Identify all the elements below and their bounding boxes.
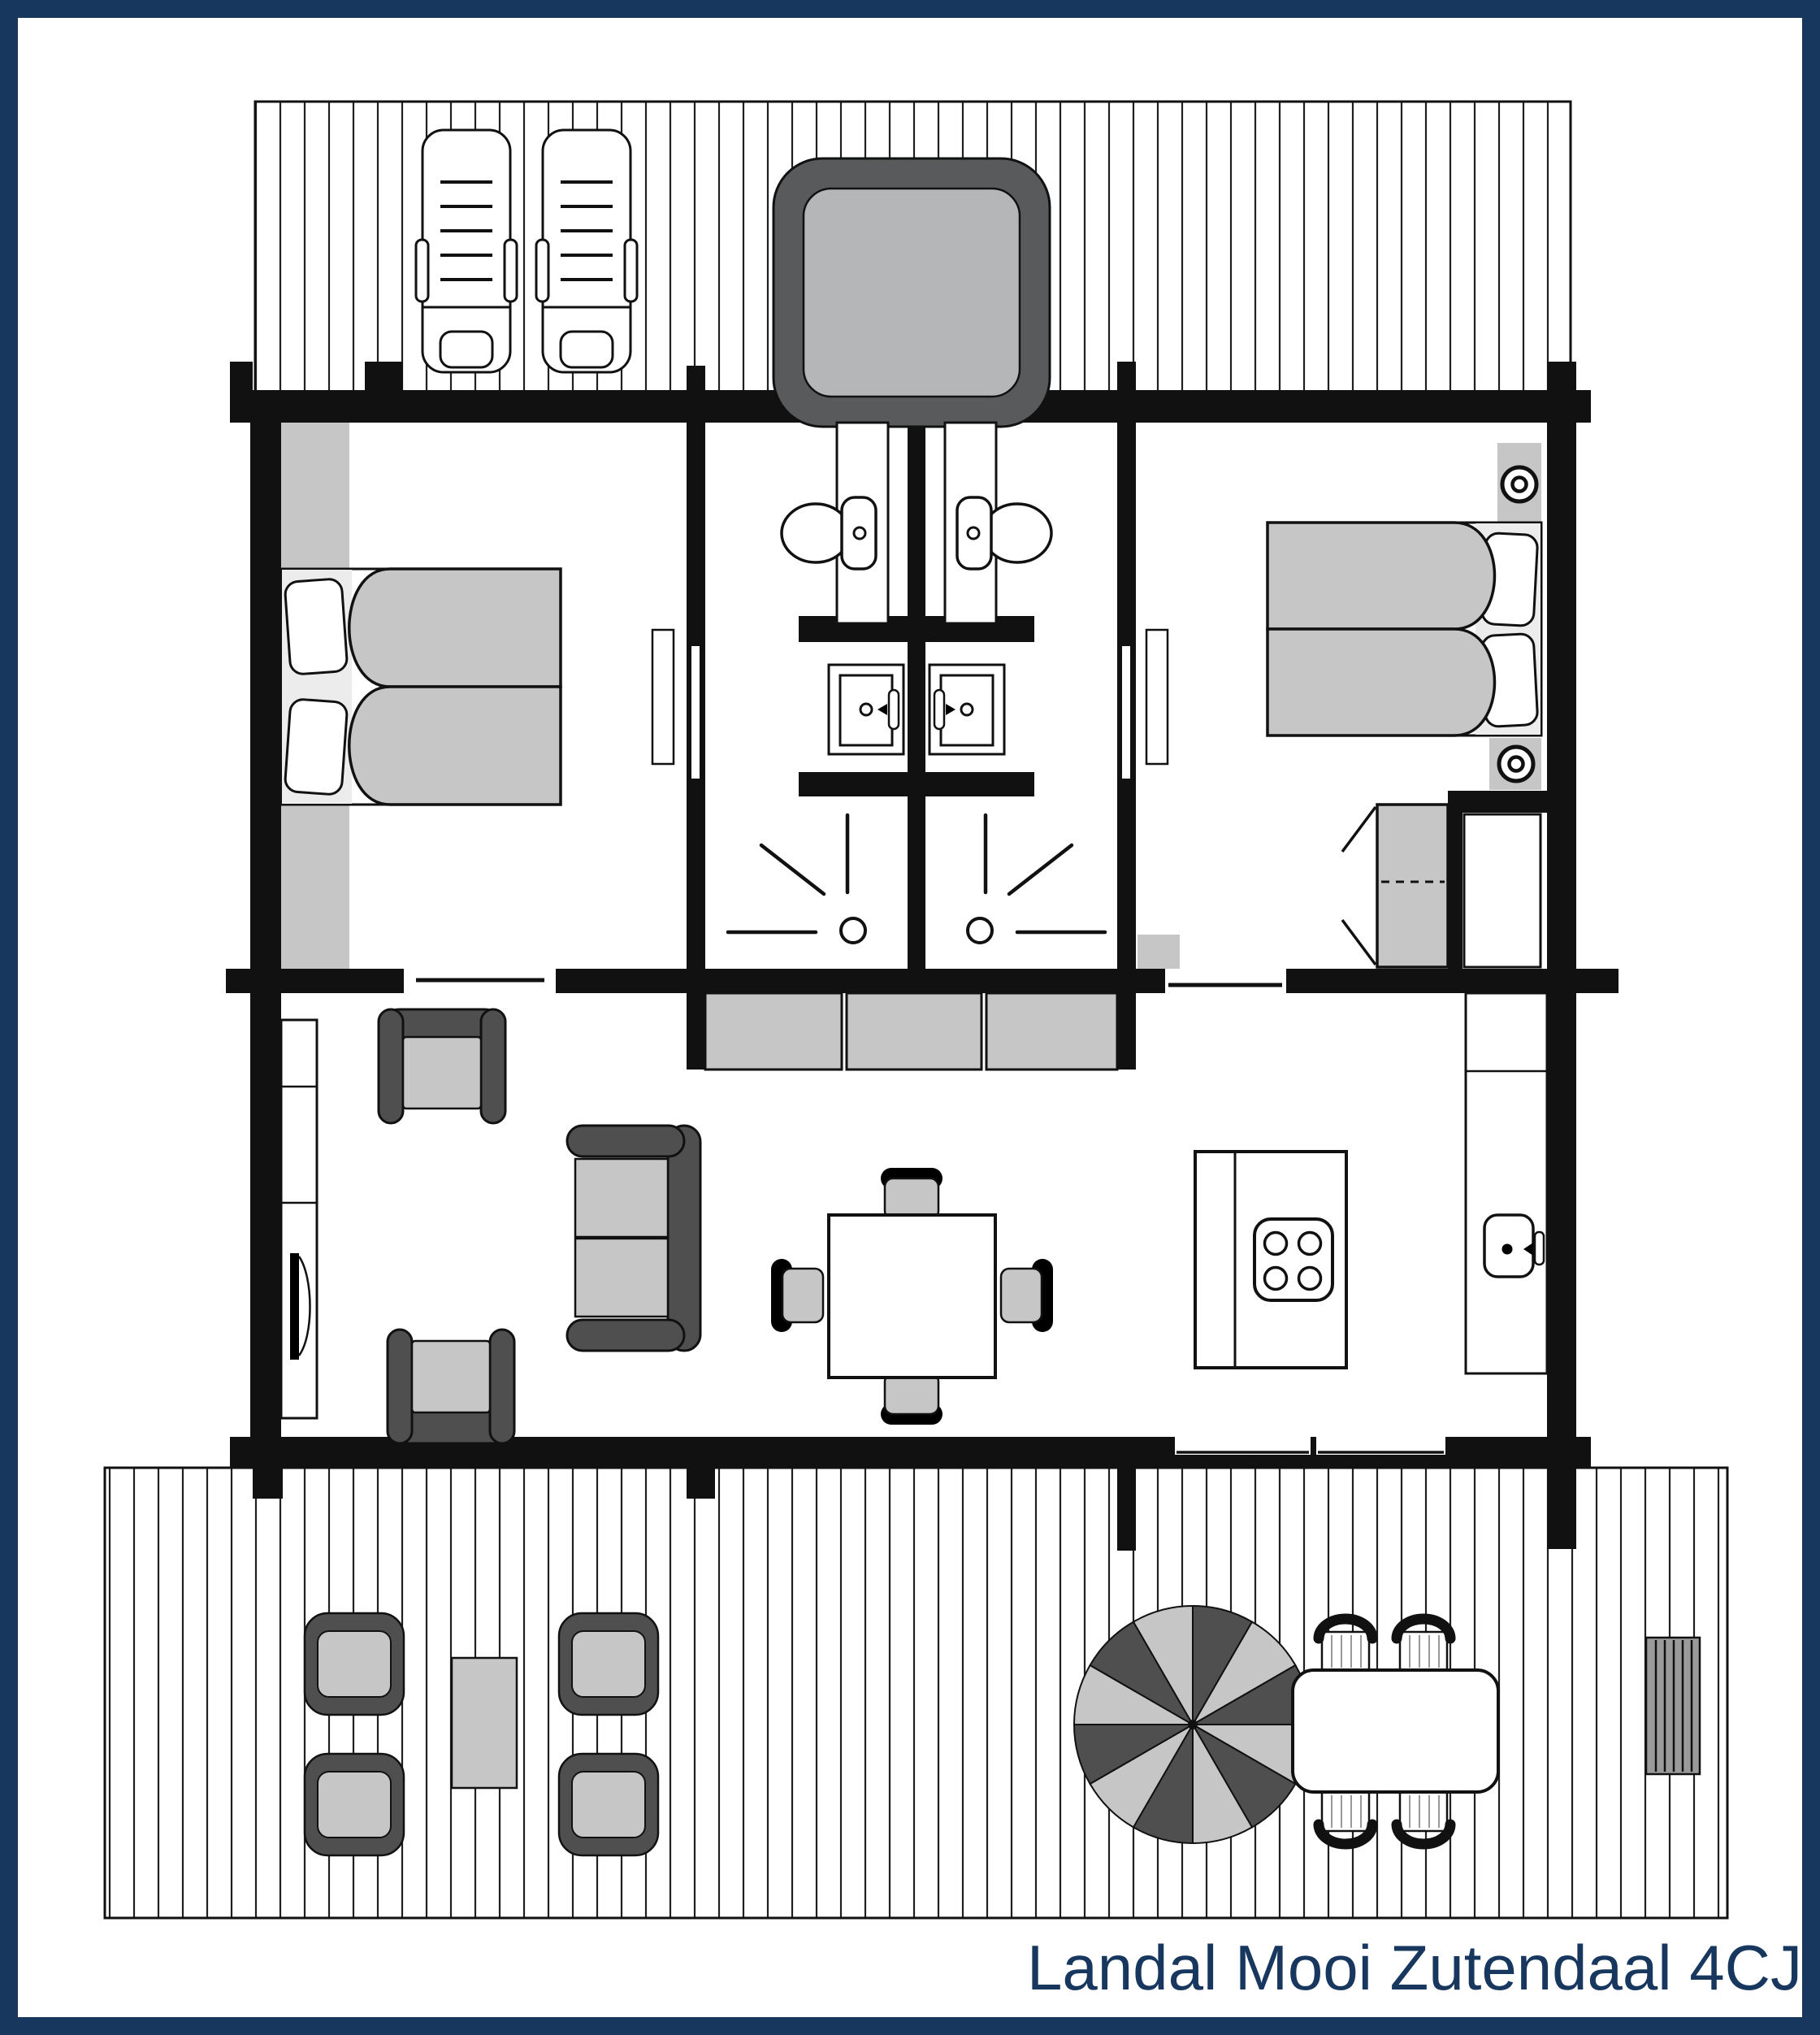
burner — [1299, 1233, 1321, 1255]
duvet — [349, 569, 561, 687]
washbasin — [829, 665, 903, 754]
cooktop — [1254, 1219, 1332, 1300]
sun-lounger-1 — [416, 130, 517, 372]
dining-chair — [885, 1373, 938, 1414]
wall-post — [1117, 362, 1136, 394]
dining-chair — [885, 1178, 938, 1219]
bathroom-right — [929, 423, 1105, 943]
dining-chair — [1001, 1269, 1042, 1322]
bedroom-right — [1137, 443, 1541, 969]
washbasin — [929, 665, 1004, 754]
patio-coffee-table — [452, 1658, 517, 1788]
wardrobe — [1342, 805, 1448, 967]
patio-chair — [559, 1754, 658, 1855]
bedroom-left — [281, 423, 674, 969]
kitchen-island — [1195, 1152, 1346, 1368]
armchair-top — [379, 1009, 505, 1123]
closet-stub-wall-v — [1448, 791, 1462, 970]
wall-post — [365, 362, 403, 394]
garden-bench — [1646, 1638, 1700, 1774]
wall-right — [1547, 390, 1576, 1468]
duvet — [349, 687, 561, 805]
sun-lounger-2 — [536, 130, 637, 372]
closet-stub-wall-h — [1448, 791, 1547, 813]
burner — [1265, 1268, 1287, 1290]
nightstand-top — [1497, 443, 1541, 523]
wall-left — [250, 390, 281, 1468]
bath1-stub-wall-lower — [799, 772, 925, 796]
double-bed-left — [281, 569, 561, 805]
plan-title: Landal Mooi Zutendaal 4CJ — [1027, 1932, 1802, 2003]
patio-chair — [559, 1613, 658, 1715]
wall-post — [687, 1468, 715, 1499]
seat-cushion — [412, 1341, 490, 1412]
double-bed-right — [1267, 523, 1541, 735]
dining-table — [829, 1215, 995, 1378]
sideboard-stub-left — [687, 993, 705, 1070]
parasol — [1074, 1606, 1311, 1843]
headboard-cabinet-bottom — [281, 805, 349, 969]
shower — [968, 815, 1105, 943]
duvet — [1267, 629, 1495, 735]
pillow — [284, 579, 348, 675]
floor-plan-page: Landal Mooi Zutendaal 4CJ — [0, 0, 1820, 2035]
wall-post — [687, 366, 705, 394]
toilet — [782, 497, 876, 569]
low-cabinet — [1137, 935, 1180, 969]
patio-chair — [305, 1613, 404, 1715]
door-middle-wall-right — [1165, 969, 1286, 993]
wall-between-bathrooms — [908, 423, 925, 969]
dining-chair — [782, 1269, 823, 1322]
headboard-cabinet-top — [281, 423, 349, 569]
door-opening-bath2 — [1122, 646, 1130, 779]
wall-post — [1547, 1468, 1576, 1549]
bath2-stub-wall-lower — [908, 772, 1034, 796]
seat-cushion — [575, 1159, 668, 1237]
door-leaf-bedroom-right — [1146, 630, 1168, 764]
burner — [1265, 1233, 1287, 1255]
hot-tub — [773, 158, 1050, 427]
patio-chair — [305, 1754, 404, 1855]
sideboard-stub-right — [1117, 993, 1136, 1070]
nightstand-bottom — [1489, 738, 1541, 790]
door-opening-bath1 — [691, 646, 700, 779]
cabinet-door — [290, 1253, 299, 1360]
toilet — [957, 497, 1051, 569]
door-leaf-bedroom-left — [652, 630, 674, 764]
armchair-bottom — [388, 1330, 514, 1443]
seat-cushion — [403, 1037, 481, 1109]
duvet — [1267, 523, 1495, 629]
faucet — [889, 690, 899, 729]
shower-drain — [841, 918, 865, 943]
sofa — [567, 1126, 700, 1351]
tall-cabinet — [281, 1020, 317, 1418]
floor-plan-svg: Landal Mooi Zutendaal 4CJ — [0, 0, 1820, 2035]
pillow — [284, 699, 348, 796]
bathroom-left — [728, 423, 903, 943]
dining-set — [771, 1168, 1053, 1425]
wall-post — [253, 1468, 283, 1499]
faucet — [934, 690, 944, 729]
wall-post — [1117, 1468, 1136, 1551]
burner — [1299, 1268, 1321, 1290]
kitchen-counter — [1466, 993, 1547, 1373]
closet-nook — [1464, 814, 1540, 967]
garden-table — [1293, 1670, 1498, 1792]
faucet — [1535, 1232, 1544, 1265]
sink-drain — [1502, 1244, 1513, 1255]
sideboard — [705, 993, 1117, 1070]
shower — [728, 815, 865, 943]
shower-drain — [968, 918, 992, 943]
seat-cushion — [575, 1239, 668, 1317]
